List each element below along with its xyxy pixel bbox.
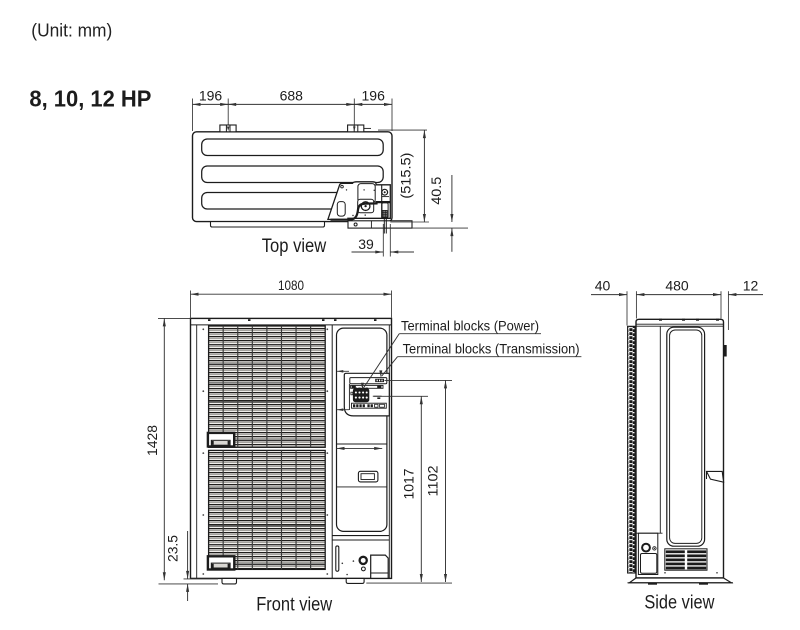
svg-text:23.5: 23.5 (165, 535, 181, 562)
svg-text:1428: 1428 (144, 425, 160, 456)
svg-text:Front view: Front view (256, 595, 332, 616)
svg-text:Side view: Side view (644, 593, 714, 614)
svg-text:8, 10, 12 HP: 8, 10, 12 HP (29, 86, 151, 112)
svg-text:40.5: 40.5 (428, 177, 444, 205)
svg-text:12: 12 (743, 277, 759, 293)
svg-text:480: 480 (665, 277, 689, 293)
svg-text:1080: 1080 (278, 277, 304, 293)
svg-text:(515.5): (515.5) (397, 153, 413, 199)
svg-text:Top view: Top view (262, 236, 327, 257)
svg-text:(Unit: mm): (Unit: mm) (31, 19, 112, 40)
svg-text:1017: 1017 (401, 468, 417, 499)
svg-text:Terminal blocks (Power): Terminal blocks (Power) (401, 317, 539, 333)
svg-text:40: 40 (595, 277, 611, 293)
svg-text:196: 196 (199, 88, 223, 104)
svg-text:688: 688 (280, 88, 304, 104)
svg-text:Terminal blocks (Transmission): Terminal blocks (Transmission) (403, 340, 580, 356)
svg-text:1102: 1102 (425, 465, 441, 496)
svg-text:196: 196 (362, 88, 386, 104)
svg-text:39: 39 (358, 236, 374, 252)
